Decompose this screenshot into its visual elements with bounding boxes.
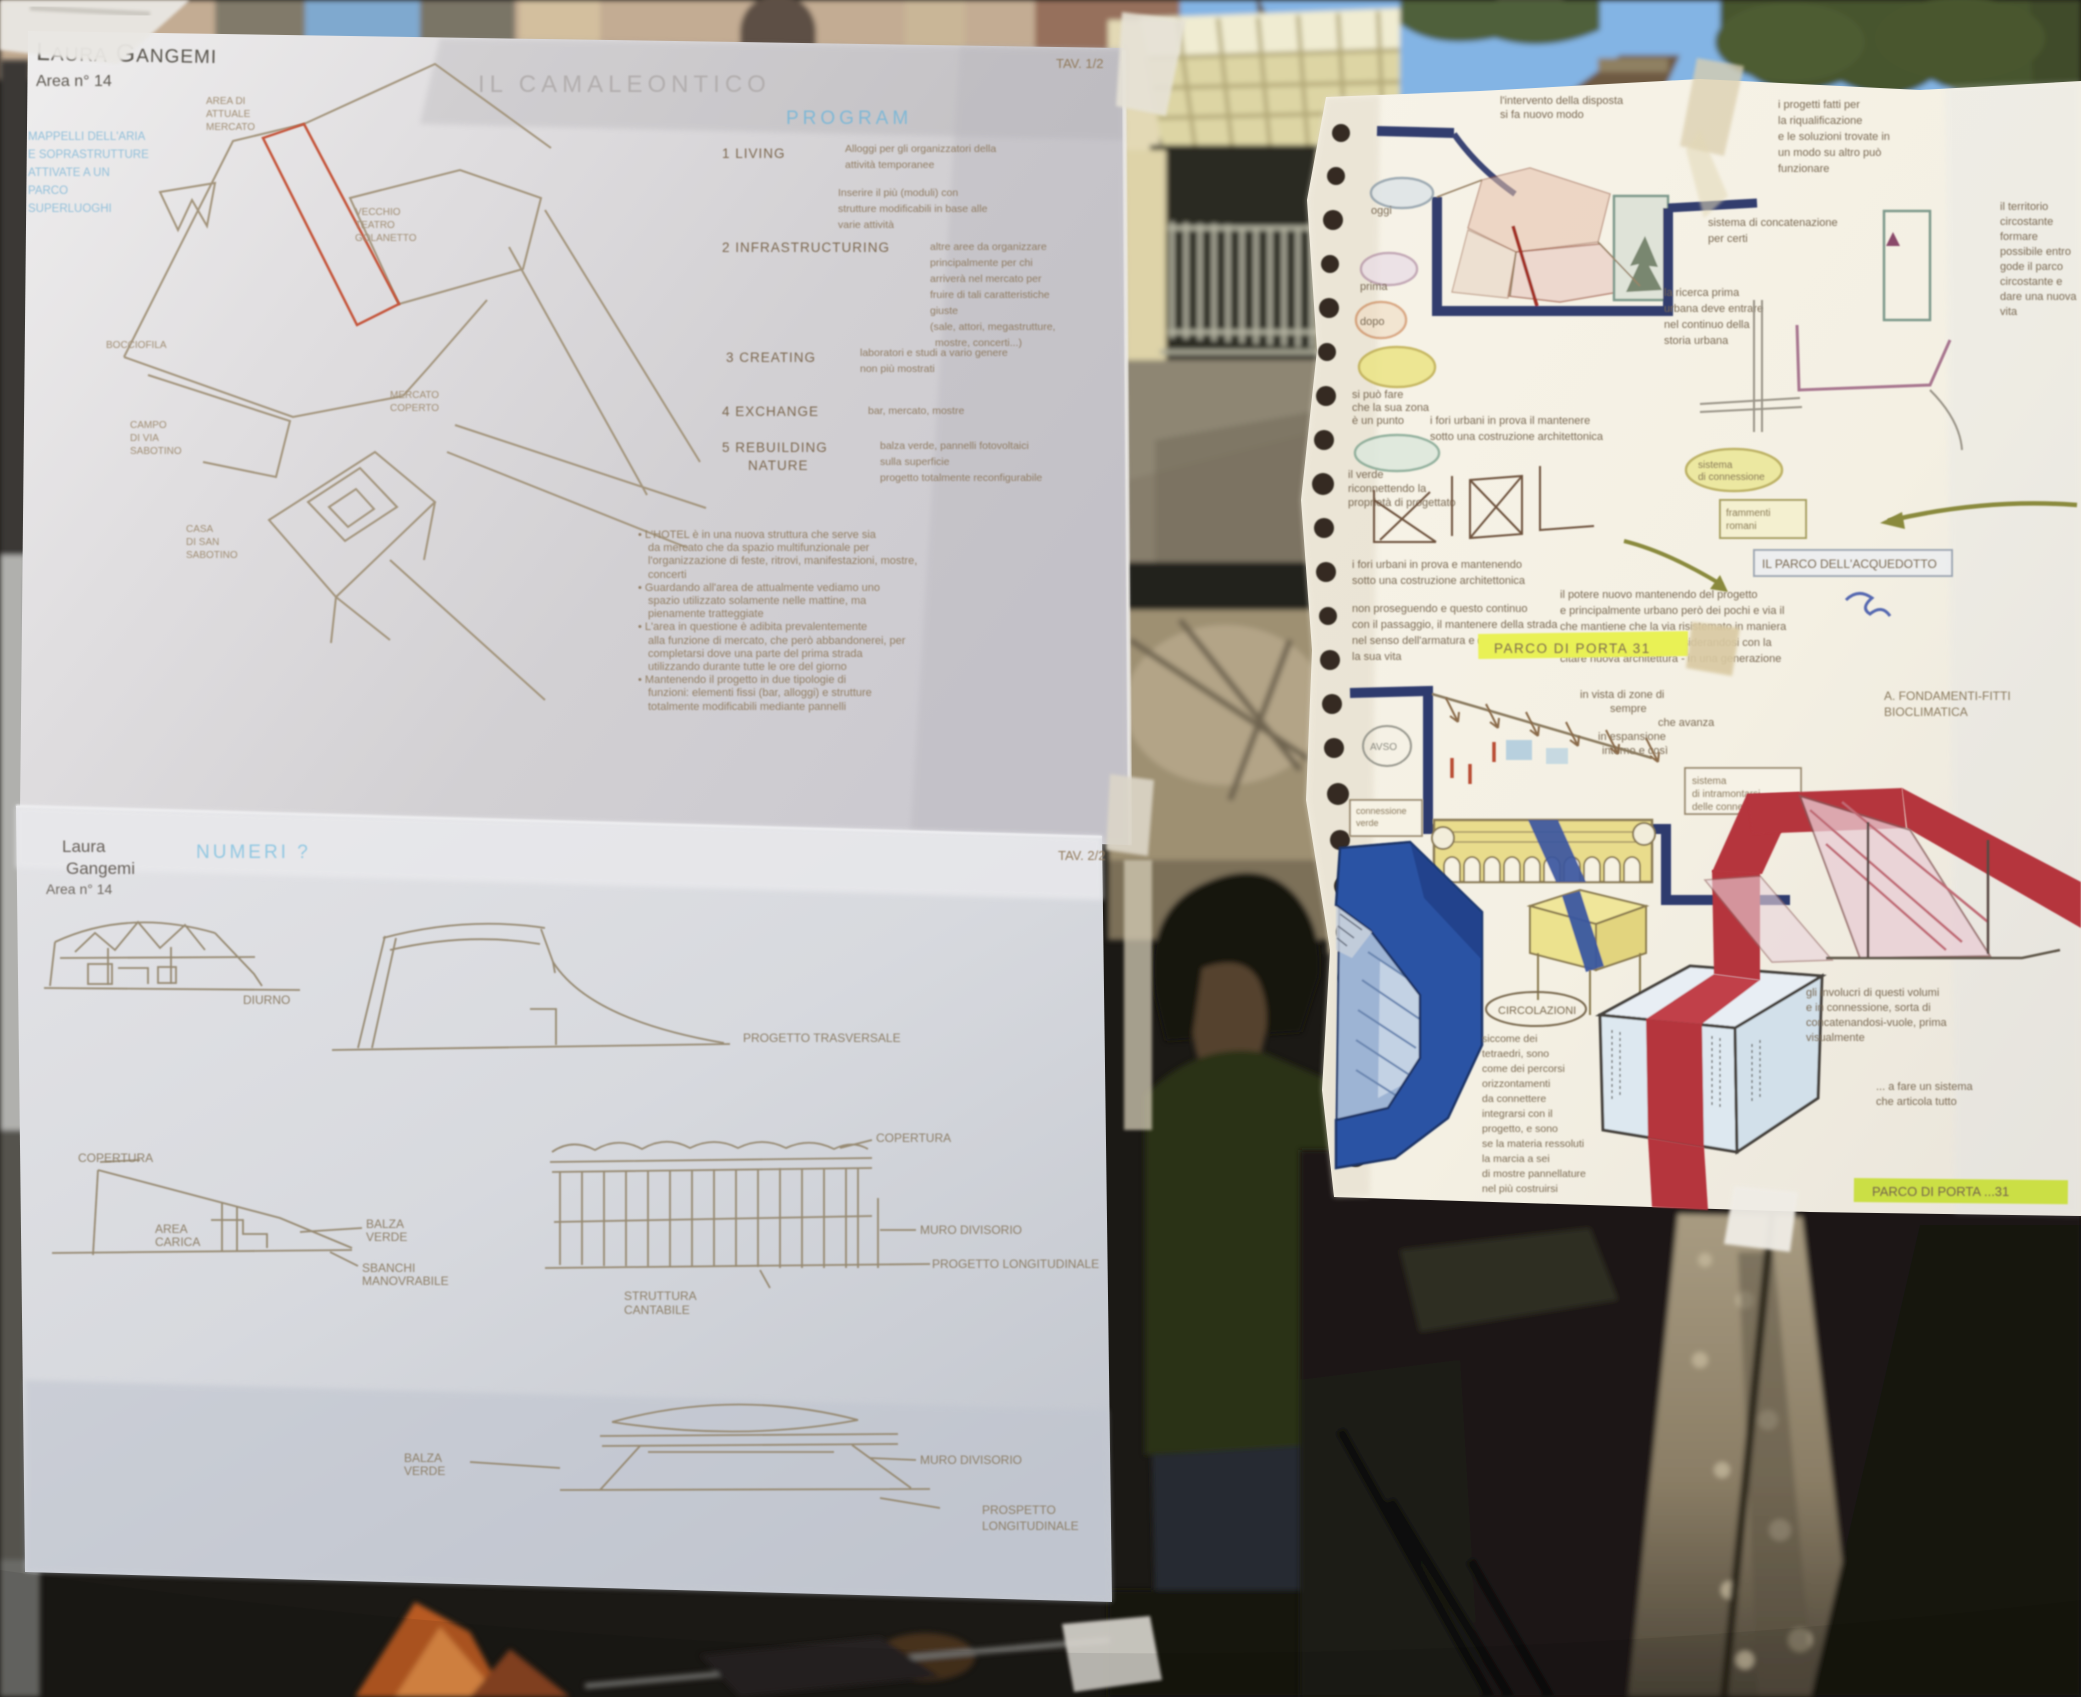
svg-text:balza verde, pannelli fotovolt: balza verde, pannelli fotovoltaici <box>880 440 1029 452</box>
svg-text:riconnettendo la: riconnettendo la <box>1348 483 1427 495</box>
svg-text:si può fare: si può fare <box>1352 389 1403 401</box>
svg-text:il verde: il verde <box>1348 469 1383 481</box>
svg-text:visualmente: visualmente <box>1806 1032 1865 1044</box>
svg-text:concatenandosi-vuole, prima: concatenandosi-vuole, prima <box>1806 1017 1948 1029</box>
svg-text:altre aree da organizzare: altre aree da organizzare <box>930 241 1047 253</box>
svg-text:laboratori e studi a vario gen: laboratori e studi a vario genere <box>860 347 1008 359</box>
svg-text:ATTUALE: ATTUALE <box>206 109 251 120</box>
svg-text:funzioni: elementi fissi (bar,: funzioni: elementi fissi (bar, alloggi) … <box>648 687 872 699</box>
svg-text:TAV. 2/2: TAV. 2/2 <box>1058 848 1105 863</box>
svg-text:IL CAMALEONTICO: IL CAMALEONTICO <box>478 71 771 98</box>
svg-text:MERCATO: MERCATO <box>206 122 255 133</box>
svg-text:e le soluzioni trovate in: e le soluzioni trovate in <box>1778 131 1890 143</box>
svg-text:attività temporanee: attività temporanee <box>845 159 934 171</box>
svg-text:oggi: oggi <box>1371 205 1392 217</box>
svg-text:AREA: AREA <box>155 1222 188 1236</box>
svg-text:SABOTINO: SABOTINO <box>186 550 238 561</box>
svg-text:la ricerca prima: la ricerca prima <box>1664 287 1740 299</box>
svg-text:BALZA: BALZA <box>404 1451 442 1465</box>
svg-text:VERDE: VERDE <box>366 1230 407 1244</box>
svg-text:1 LIVING: 1 LIVING <box>722 146 786 161</box>
svg-text:circostante e: circostante e <box>2000 276 2062 288</box>
svg-text:prima: prima <box>1360 281 1388 293</box>
svg-text:non più mostrati: non più mostrati <box>860 363 935 375</box>
svg-text:la sua vita: la sua vita <box>1352 651 1402 663</box>
svg-text:varie attività: varie attività <box>838 219 894 231</box>
svg-text:i fori urbani in prova il mant: i fori urbani in prova il mantenere <box>1430 415 1590 427</box>
svg-text:Laura: Laura <box>62 837 106 856</box>
svg-text:CAMPO: CAMPO <box>130 420 167 431</box>
svg-text:gli involucri di questi volumi: gli involucri di questi volumi <box>1806 987 1939 999</box>
svg-text:PROSPETTO: PROSPETTO <box>982 1503 1056 1517</box>
svg-text:... a fare un sistema: ... a fare un sistema <box>1876 1081 1973 1093</box>
svg-text:SUPERLUOGHI: SUPERLUOGHI <box>28 203 112 215</box>
svg-text:2 INFRASTRUCTURING: 2 INFRASTRUCTURING <box>722 240 890 255</box>
svg-text:l'organizzazione di feste, rit: l'organizzazione di feste, ritrovi, mani… <box>648 555 917 567</box>
svg-text:sistema di concatenazione: sistema di concatenazione <box>1708 217 1838 229</box>
svg-text:BALZA: BALZA <box>366 1217 404 1231</box>
svg-text:per certi: per certi <box>1708 233 1748 245</box>
svg-text:nel continuo della: nel continuo della <box>1664 319 1751 331</box>
svg-text:MURO DIVISORIO: MURO DIVISORIO <box>920 1453 1022 1467</box>
svg-text:utilizzando durante tutte le o: utilizzando durante tutte le ore del gio… <box>648 661 847 673</box>
svg-text:bar, mercato, mostre: bar, mercato, mostre <box>868 405 964 417</box>
svg-text:• L'area in questione è adibit: • L'area in questione è adibita prevalen… <box>638 621 867 633</box>
svg-text:strutture modificabili in base: strutture modificabili in base alle <box>838 203 988 215</box>
svg-text:che articola tutto: che articola tutto <box>1876 1096 1957 1108</box>
svg-text:sotto una costruzione architet: sotto una costruzione architettonica <box>1430 431 1604 443</box>
svg-text:spazio utilizzato solamente ne: spazio utilizzato solamente nelle mattin… <box>648 595 867 607</box>
svg-text:sistema: sistema <box>1698 460 1733 471</box>
svg-text:l'intervento della disposta: l'intervento della disposta <box>1500 95 1624 107</box>
svg-text:come dei percorsi: come dei percorsi <box>1482 1063 1565 1075</box>
svg-text:che mantiene che la via risist: che mantiene che la via risistemato in m… <box>1560 621 1787 633</box>
svg-text:con il passaggio, il mantenere: con il passaggio, il mantenere della str… <box>1352 619 1558 631</box>
svg-text:NUMERI ?: NUMERI ? <box>196 842 311 863</box>
svg-text:completarsi dove una parte del: completarsi dove una parte del prima str… <box>648 648 863 660</box>
svg-text:IL PARCO DELL'ACQUEDOTTO: IL PARCO DELL'ACQUEDOTTO <box>1762 557 1937 571</box>
svg-text:progetto, e sono: progetto, e sono <box>1482 1123 1558 1135</box>
svg-text:connessione: connessione <box>1356 806 1407 816</box>
svg-text:A. FONDAMENTI-FITTI: A. FONDAMENTI-FITTI <box>1884 689 2011 703</box>
svg-text:di connessione: di connessione <box>1698 472 1765 483</box>
svg-text:AVSO: AVSO <box>1370 742 1397 753</box>
svg-text:è un punto: è un punto <box>1352 415 1404 427</box>
svg-text:di mostre pannellature: di mostre pannellature <box>1482 1168 1586 1180</box>
svg-text:che avanza: che avanza <box>1658 717 1715 729</box>
svg-text:concerti: concerti <box>648 569 687 581</box>
svg-text:funzionare: funzionare <box>1778 163 1829 175</box>
svg-text:• L'HOTEL è in una nuova strut: • L'HOTEL è in una nuova struttura che s… <box>638 529 877 541</box>
svg-text:orizzontamenti: orizzontamenti <box>1482 1078 1550 1090</box>
svg-text:la riqualificazione: la riqualificazione <box>1778 115 1862 127</box>
svg-text:MURO DIVISORIO: MURO DIVISORIO <box>920 1223 1022 1237</box>
svg-text:principalmente per chi: principalmente per chi <box>930 257 1033 269</box>
svg-text:SABOTINO: SABOTINO <box>130 446 182 457</box>
svg-text:possibile entro: possibile entro <box>2000 246 2071 258</box>
svg-text:STRUTTURA: STRUTTURA <box>624 1289 697 1303</box>
svg-text:SBANCHI: SBANCHI <box>362 1261 415 1275</box>
svg-text:VECCHIO: VECCHIO <box>355 207 401 218</box>
svg-text:COPERTURA: COPERTURA <box>78 1151 153 1165</box>
svg-text:TEATRO: TEATRO <box>355 220 395 231</box>
svg-text:4 EXCHANGE: 4 EXCHANGE <box>722 404 819 419</box>
svg-text:alla funzione di mercato, che: alla funzione di mercato, che però abban… <box>648 635 906 647</box>
svg-text:Alloggi per gli organizzatori: Alloggi per gli organizzatori della <box>845 143 996 155</box>
svg-text:sempre: sempre <box>1610 703 1647 715</box>
svg-text:integrarsi con il: integrarsi con il <box>1482 1108 1553 1120</box>
svg-text:giuste: giuste <box>930 305 958 317</box>
svg-text:CASA: CASA <box>186 524 214 535</box>
svg-text:urbana deve entrare: urbana deve entrare <box>1664 303 1763 315</box>
svg-text:BOCCIOFILA: BOCCIOFILA <box>106 340 167 351</box>
svg-text:nel più costruirsi: nel più costruirsi <box>1482 1183 1558 1195</box>
svg-text:vita: vita <box>2000 306 2018 318</box>
svg-text:E SOPRASTRUTTURE: E SOPRASTRUTTURE <box>28 149 149 161</box>
svg-text:un modo su altro può: un modo su altro può <box>1778 147 1881 159</box>
svg-text:fruire di tali caratteristiche: fruire di tali caratteristiche <box>930 289 1050 301</box>
svg-text:il territorio: il territorio <box>2000 201 2048 213</box>
svg-text:pienamente tratteggiate: pienamente tratteggiate <box>648 608 764 620</box>
svg-text:la marcia a sei: la marcia a sei <box>1482 1153 1550 1165</box>
svg-text:MERCATO: MERCATO <box>390 390 439 401</box>
svg-text:PROGRAM: PROGRAM <box>786 108 912 129</box>
svg-text:sistema: sistema <box>1692 776 1727 787</box>
svg-text:VERDE: VERDE <box>404 1464 445 1478</box>
svg-text:i progetti fatti per: i progetti fatti per <box>1778 99 1860 111</box>
svg-text:sotto una costruzione architet: sotto una costruzione architettonica <box>1352 575 1526 587</box>
svg-text:in vista di zone di: in vista di zone di <box>1580 689 1664 701</box>
svg-text:da mercato che da spazio multi: da mercato che da spazio multifunzionale… <box>648 542 870 554</box>
svg-text:dopo: dopo <box>1360 316 1384 328</box>
svg-text:CIRCOLAZIONI: CIRCOLAZIONI <box>1498 1005 1576 1017</box>
svg-text:Area n° 14: Area n° 14 <box>36 73 112 90</box>
svg-text:frammenti: frammenti <box>1726 508 1770 519</box>
svg-text:dare una nuova: dare una nuova <box>2000 291 2077 303</box>
svg-text:PARCO: PARCO <box>28 185 68 197</box>
svg-text:i fori urbani in prova e mante: i fori urbani in prova e mantenendo <box>1352 559 1522 571</box>
svg-text:se la materia ressoluti: se la materia ressoluti <box>1482 1138 1584 1150</box>
svg-text:circostante: circostante <box>2000 216 2053 228</box>
svg-text:da connettere: da connettere <box>1482 1093 1546 1105</box>
svg-text:ATTIVATE A UN: ATTIVATE A UN <box>28 167 110 179</box>
svg-text:PROGETTO TRASVERSALE: PROGETTO TRASVERSALE <box>743 1031 901 1045</box>
svg-text:Area n° 14: Area n° 14 <box>46 881 113 897</box>
svg-text:PARCO DI PORTA ...31: PARCO DI PORTA ...31 <box>1872 1184 2009 1199</box>
svg-text:e in connessione, sorta di: e in connessione, sorta di <box>1806 1002 1931 1014</box>
svg-text:storia urbana: storia urbana <box>1664 335 1729 347</box>
svg-text:gode il parco: gode il parco <box>2000 261 2063 273</box>
svg-text:Inserire il più (moduli) con: Inserire il più (moduli) con <box>838 187 958 199</box>
svg-text:LONGITUDINALE: LONGITUDINALE <box>982 1519 1079 1533</box>
svg-text:sulla superficie: sulla superficie <box>880 456 950 468</box>
svg-text:• Guardando all'area de attual: • Guardando all'area de attualmente vedi… <box>638 582 880 594</box>
svg-text:che la sua zona: che la sua zona <box>1352 402 1430 414</box>
svg-text:CANTABILE: CANTABILE <box>624 1303 690 1317</box>
svg-text:CARICA: CARICA <box>155 1235 200 1249</box>
svg-text:DI SAN: DI SAN <box>186 537 219 548</box>
svg-text:DI VIA: DI VIA <box>130 433 159 444</box>
svg-text:COPERTO: COPERTO <box>390 403 439 414</box>
svg-text:DIURNO: DIURNO <box>243 993 290 1007</box>
svg-text:BIOCLIMATICA: BIOCLIMATICA <box>1884 705 1968 719</box>
svg-text:siccome dei: siccome dei <box>1482 1033 1537 1045</box>
svg-text:verde: verde <box>1356 818 1379 828</box>
svg-text:5 REBUILDING: 5 REBUILDING <box>722 440 828 455</box>
svg-text:• Mantenendo il progetto in du: • Mantenendo il progetto in due tipologi… <box>638 674 846 686</box>
svg-text:COPERTURA: COPERTURA <box>876 1131 951 1145</box>
svg-text:PARCO DI PORTA 31: PARCO DI PORTA 31 <box>1494 641 1651 656</box>
svg-text:PROGETTO LONGITUDINALE: PROGETTO LONGITUDINALE <box>932 1257 1099 1271</box>
svg-text:Gangemi: Gangemi <box>66 859 135 878</box>
svg-text:proprietà di progettato: proprietà di progettato <box>1348 497 1456 509</box>
svg-text:AREA DI: AREA DI <box>206 96 245 107</box>
svg-text:3 CREATING: 3 CREATING <box>726 350 816 365</box>
svg-text:MAPPELLI DELL'ARIA: MAPPELLI DELL'ARIA <box>28 131 146 143</box>
svg-text:MANOVRABILE: MANOVRABILE <box>362 1274 449 1288</box>
svg-text:si fa nuovo modo: si fa nuovo modo <box>1500 109 1584 121</box>
svg-text:totalmente modificabili median: totalmente modificabili mediante pannell… <box>648 701 846 713</box>
svg-text:il potere nuovo mantenendo del: il potere nuovo mantenendo del progetto <box>1560 589 1758 601</box>
svg-text:progetto totalmente reconfigur: progetto totalmente reconfigurabile <box>880 472 1042 484</box>
svg-text:tetraedri, sono: tetraedri, sono <box>1482 1048 1549 1060</box>
svg-text:formare: formare <box>2000 231 2038 243</box>
svg-text:NATURE: NATURE <box>748 458 809 473</box>
svg-text:TAV. 1/2: TAV. 1/2 <box>1056 56 1103 71</box>
svg-text:arriverà nel mercato per: arriverà nel mercato per <box>930 273 1042 285</box>
svg-text:GOLANETTO: GOLANETTO <box>355 233 417 244</box>
svg-text:e principalmente urbano però d: e principalmente urbano però dei pochi e… <box>1560 605 1784 617</box>
svg-text:romani: romani <box>1726 521 1757 532</box>
svg-text:(sale, attori, megastrutture,: (sale, attori, megastrutture, <box>930 321 1055 333</box>
svg-text:non proseguendo e questo conti: non proseguendo e questo continuo <box>1352 603 1528 615</box>
